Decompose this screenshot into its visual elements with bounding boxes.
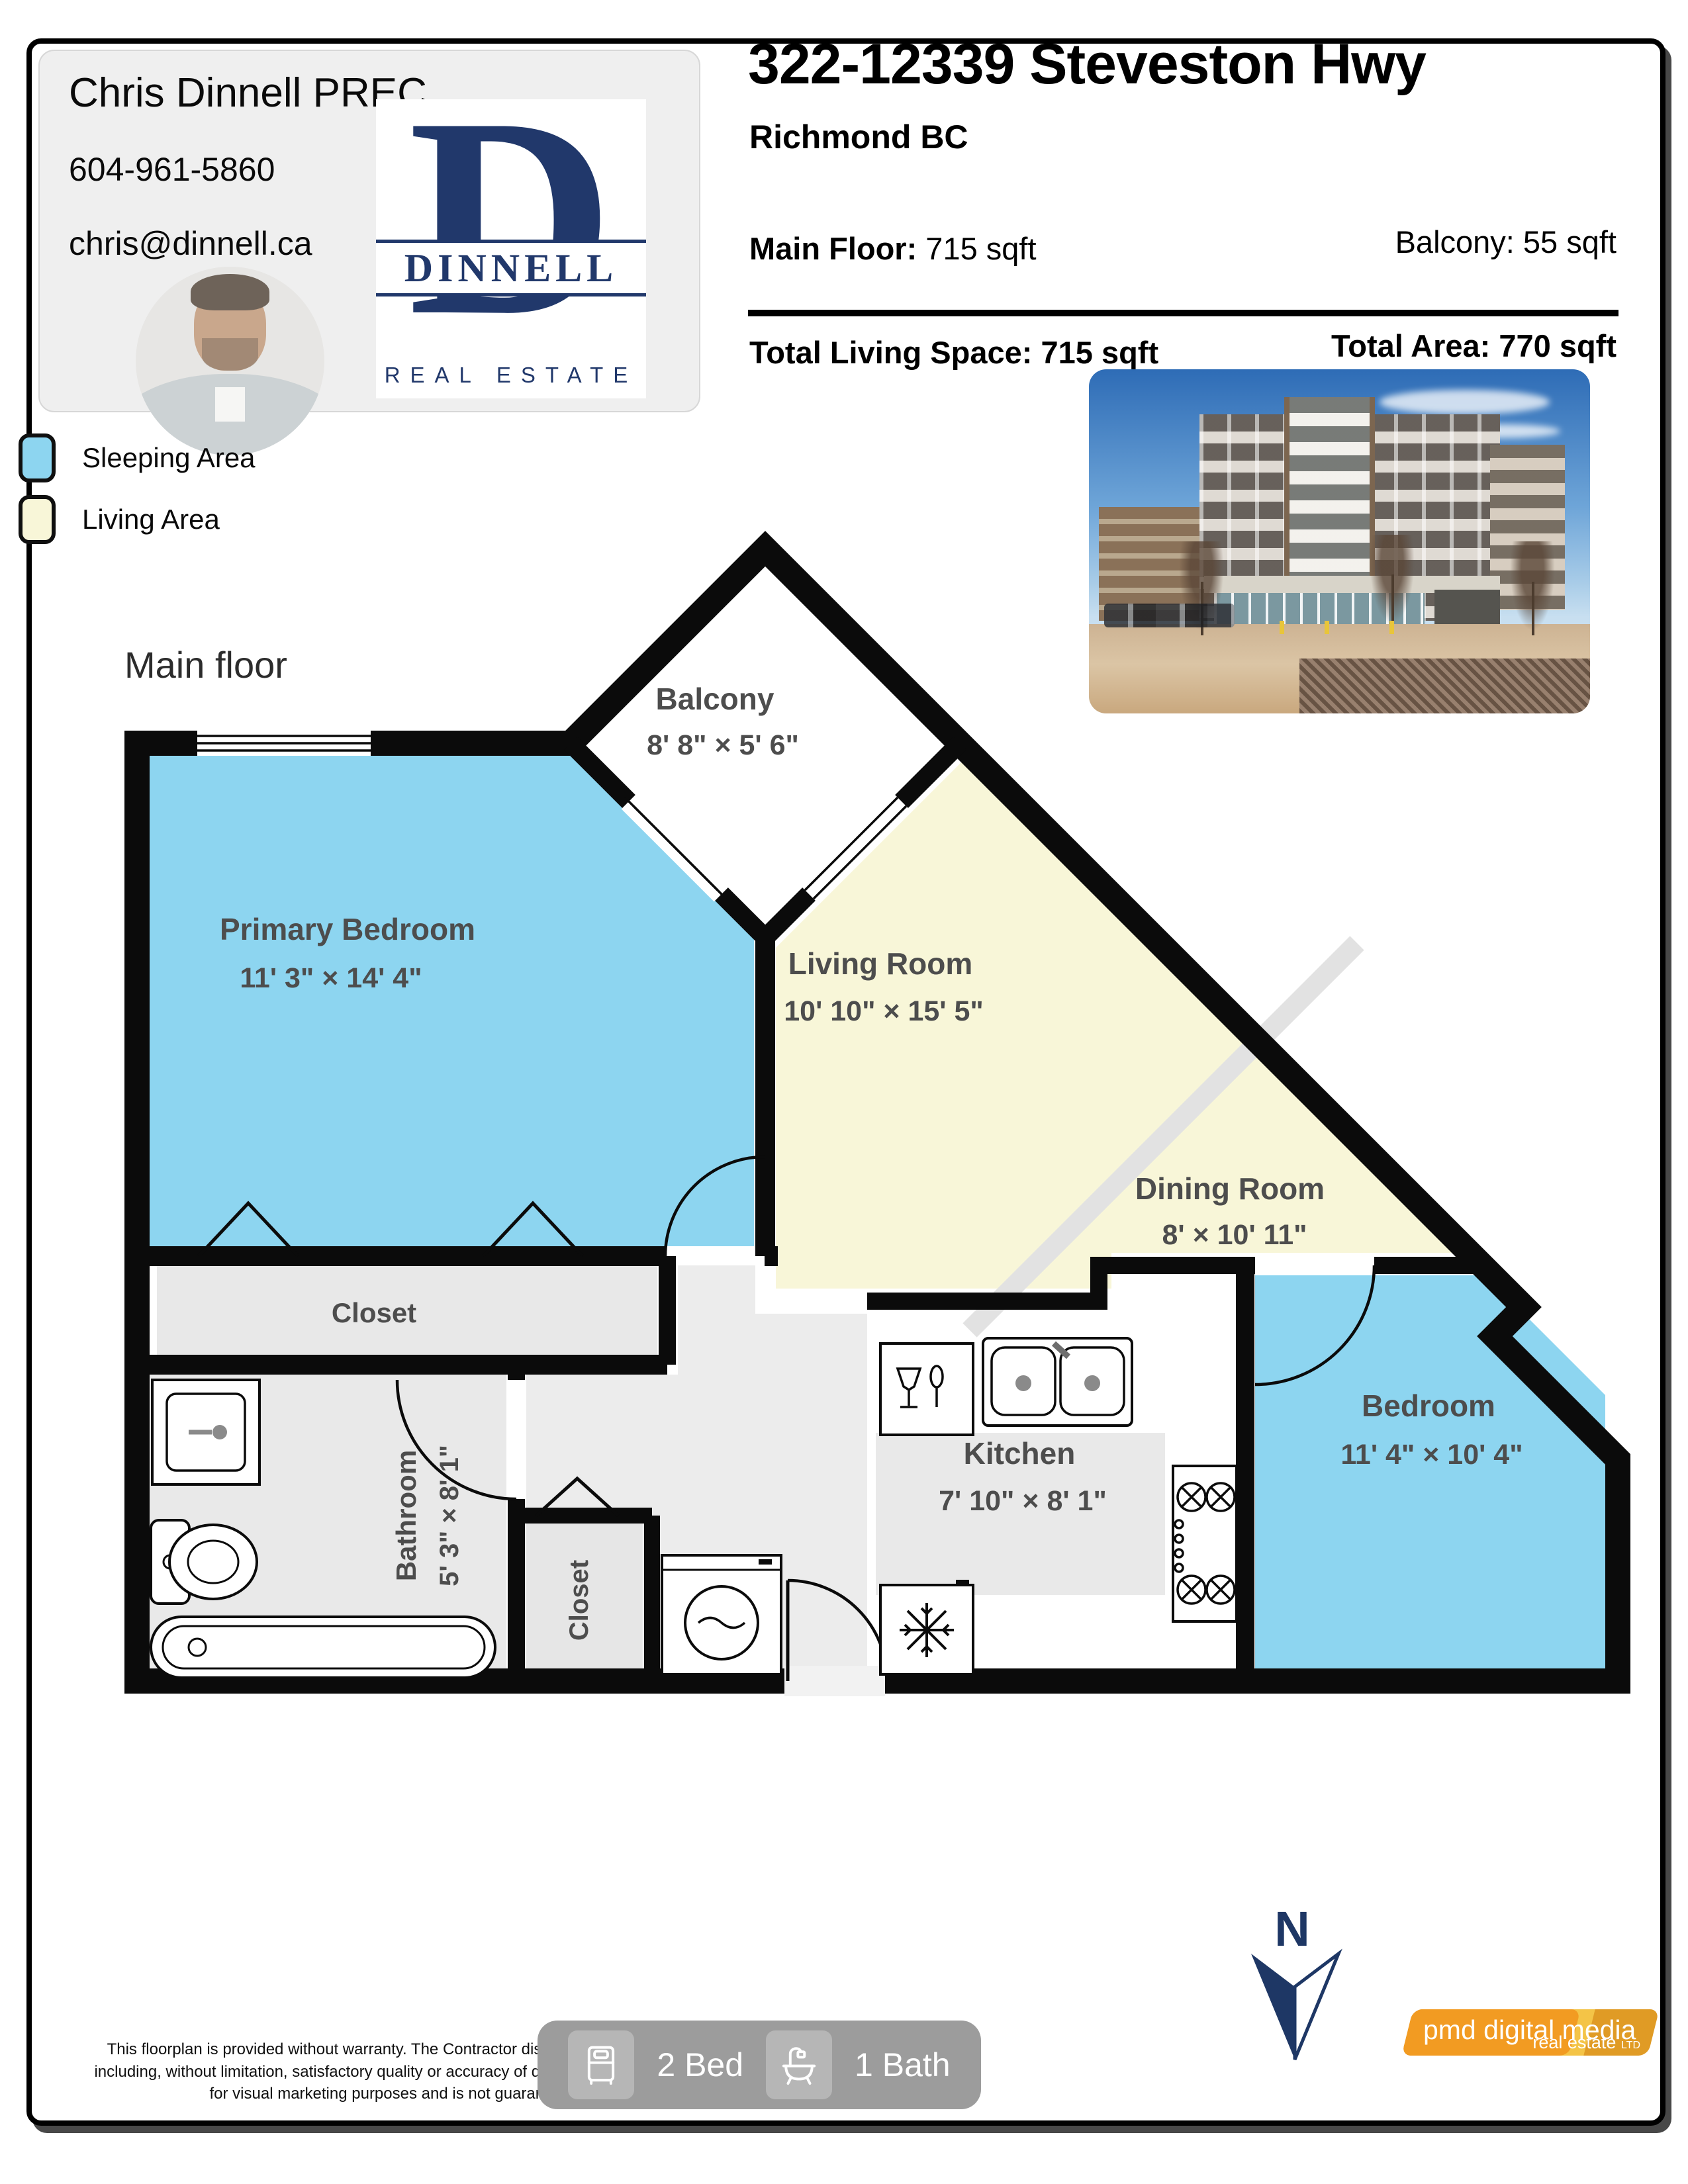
bedroom-area [1255, 1275, 1605, 1668]
north-label: N [1274, 1901, 1309, 1956]
bathtub [151, 1617, 495, 1678]
bedroom-dims: 11' 4" × 10' 4" [1340, 1439, 1523, 1471]
bedroom-label: Bedroom [1362, 1388, 1495, 1423]
window-primary [191, 731, 377, 756]
primary-bedroom-dims: 11' 3" × 14' 4" [240, 962, 422, 994]
spoon-icon [931, 1366, 943, 1387]
bed-count: 2 Bed [657, 2046, 743, 2084]
flyer-page: Chris Dinnell PREC 604-961-5860 chris@di… [0, 0, 1688, 2184]
north-arrow-icon: N [1251, 1901, 1338, 2060]
bathroom-sink [152, 1380, 259, 1484]
kitchen-dims: 7' 10" × 8' 1" [939, 1485, 1107, 1517]
kitchen-label: Kitchen [964, 1436, 1076, 1471]
living-room-dims: 10' 10" × 15' 5" [784, 995, 984, 1027]
pmd-logo: pmd digital media real estate LTD [1407, 2009, 1654, 2056]
dishwasher [880, 1343, 973, 1435]
fridge [880, 1580, 973, 1674]
bath-count: 1 Bath [855, 2046, 951, 2084]
balcony-label: Balcony [656, 682, 774, 716]
floorplan: Balcony 8' 8" × 5' 6" Primary Bedroom 11… [0, 0, 1688, 2184]
dining-room-dims: 8' × 10' 11" [1162, 1219, 1307, 1251]
primary-bedroom-label: Primary Bedroom [220, 912, 475, 946]
pmd-ltd: LTD [1621, 2040, 1640, 2051]
bathroom-label: Bathroom [391, 1450, 422, 1581]
pmd-sub-text: real estate [1532, 2032, 1616, 2052]
primary-closet-label: Closet [332, 1297, 416, 1328]
snowflake-icon [900, 1603, 954, 1657]
pmd-logo-sub: real estate LTD [1532, 2032, 1640, 2053]
bath-icon-box [766, 2030, 832, 2099]
bed-icon [579, 2043, 623, 2087]
hall-closet-label: Closet [565, 1560, 594, 1641]
washer [662, 1555, 781, 1674]
kitchen-sink [983, 1338, 1132, 1426]
living-room-label: Living Room [788, 946, 973, 981]
dining-room-label: Dining Room [1135, 1171, 1325, 1206]
bathroom-dims: 5' 3" × 8' 1" [435, 1445, 464, 1586]
toilet [151, 1520, 257, 1604]
living-dining-area [776, 762, 1510, 1310]
balcony-dims: 8' 8" × 5' 6" [647, 729, 799, 761]
stove [1173, 1466, 1237, 1621]
bath-icon [777, 2043, 821, 2087]
bed-bath-badges: 2 Bed 1 Bath [538, 2021, 981, 2109]
bed-icon-box [568, 2030, 634, 2099]
